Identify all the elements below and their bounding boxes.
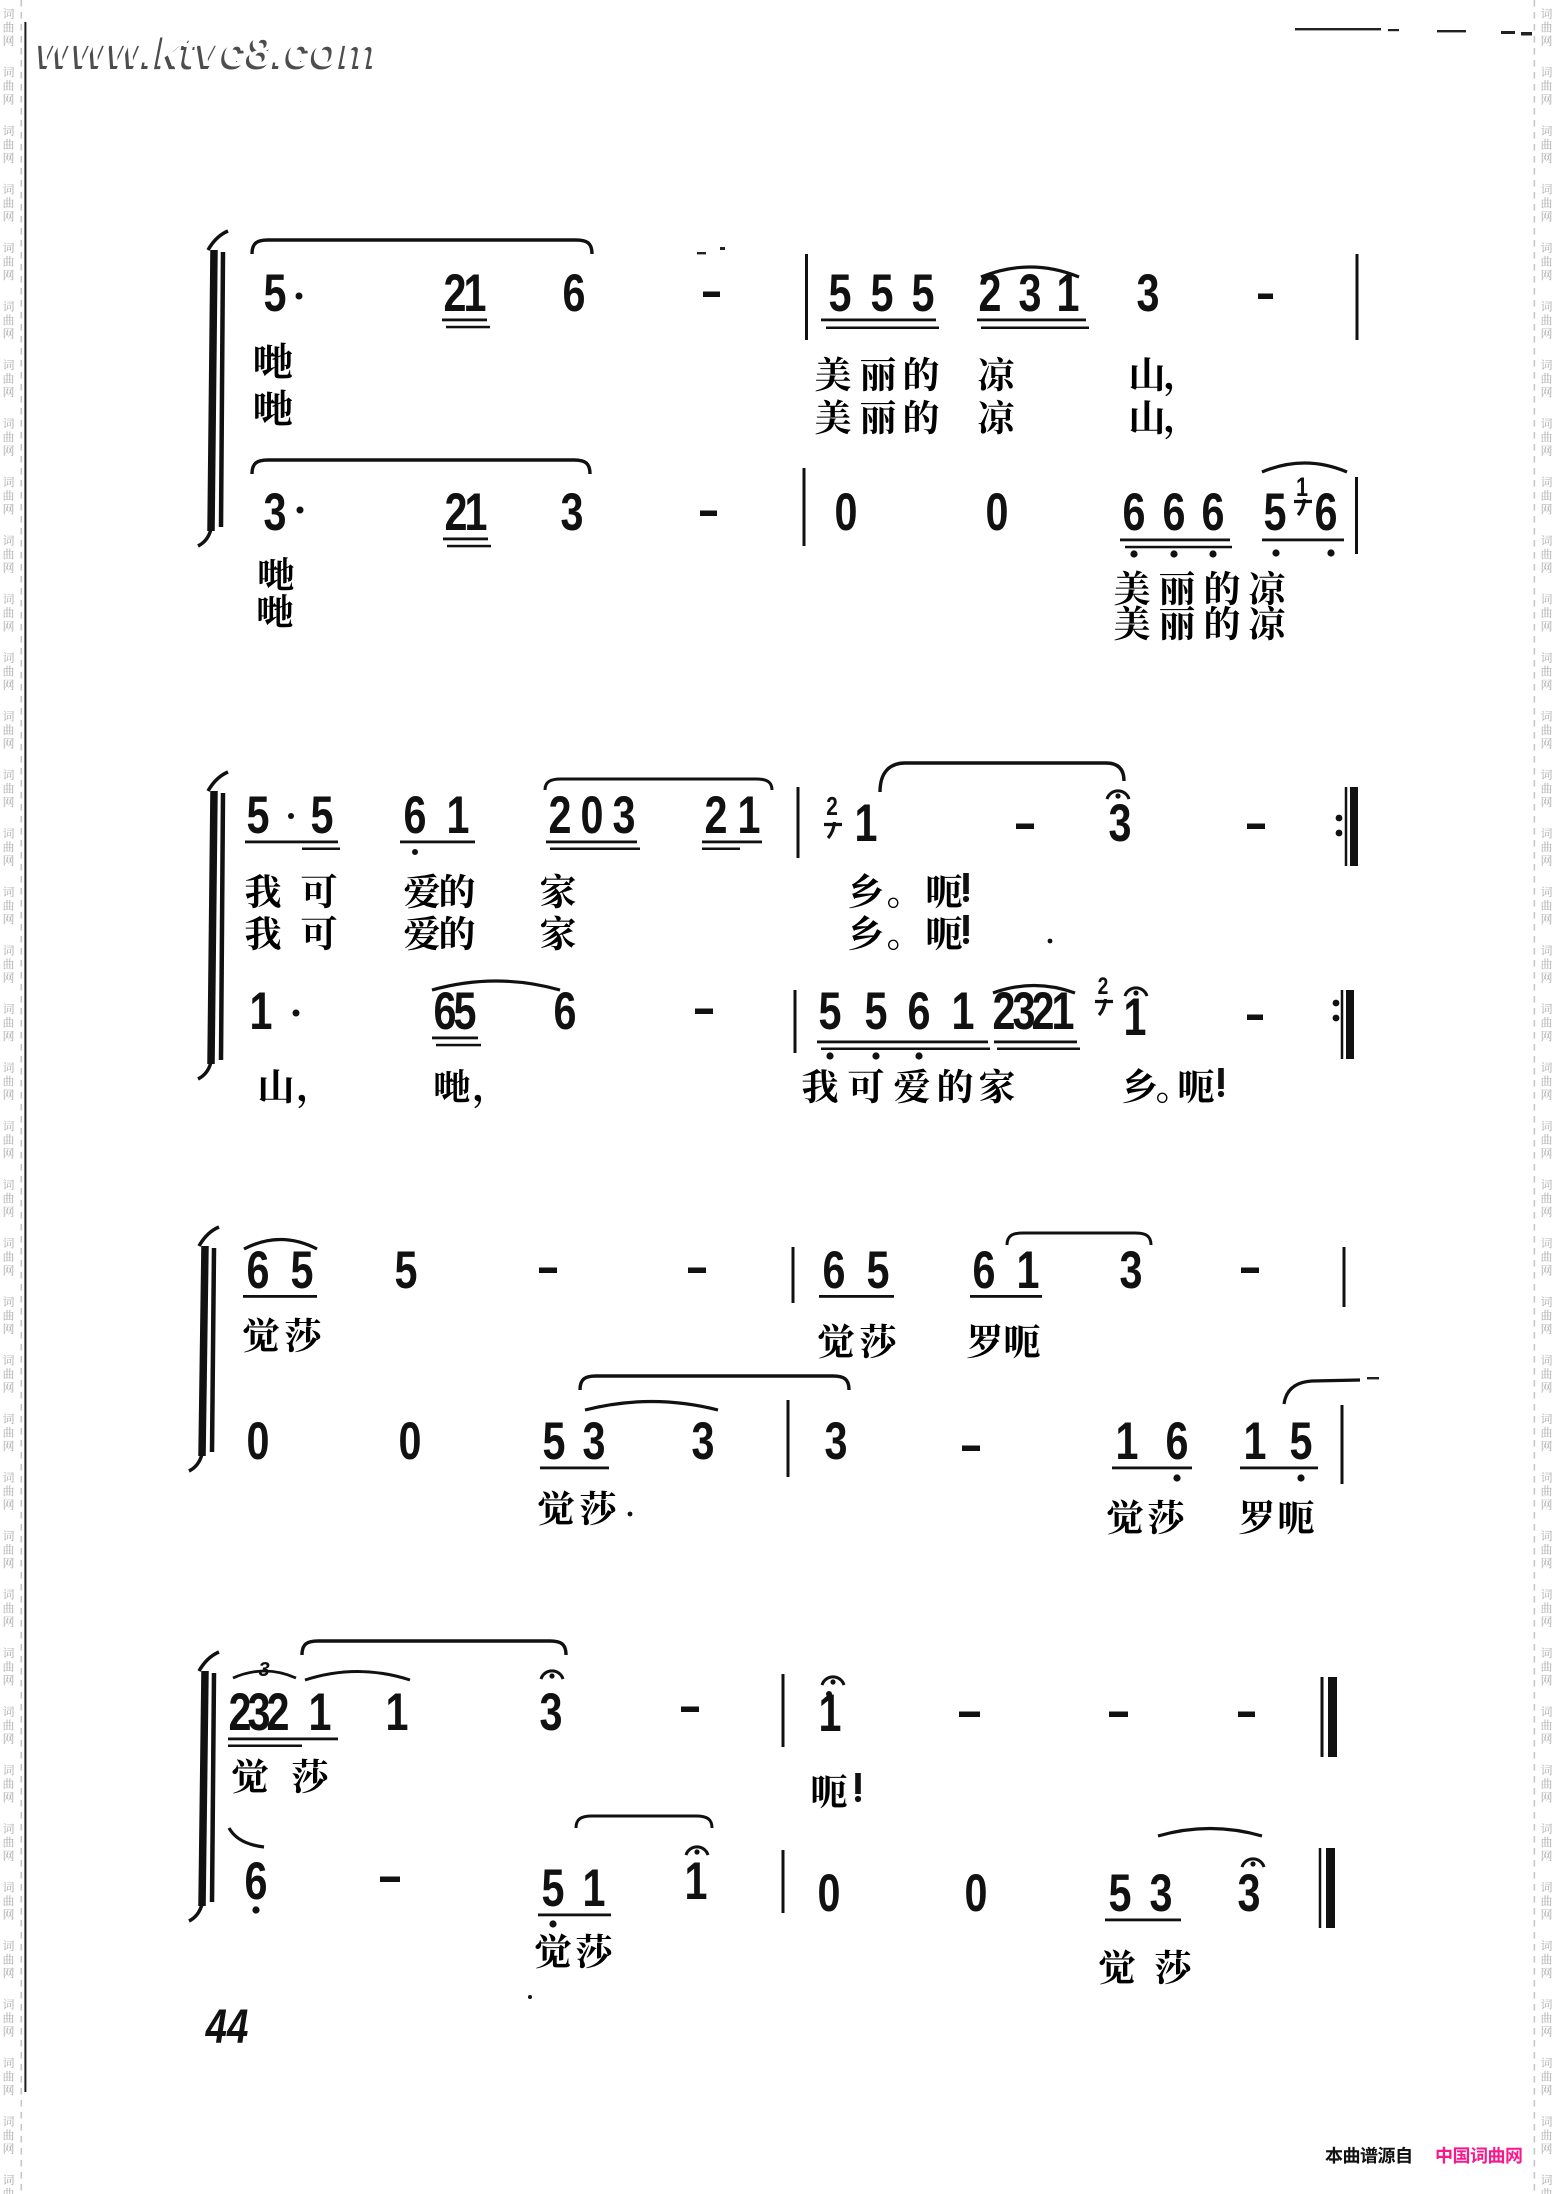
svg-text:5: 5 [454, 982, 477, 1041]
svg-text:1: 1 [1296, 473, 1308, 503]
svg-text:3: 3 [1150, 1864, 1173, 1923]
svg-text:1: 1 [819, 1684, 842, 1743]
svg-text:5: 5 [542, 1859, 565, 1918]
svg-text:1: 1 [1244, 1412, 1267, 1471]
svg-text:3: 3 [258, 1659, 269, 1681]
svg-text:2: 2 [1098, 972, 1109, 1000]
svg-text:0: 0 [818, 1864, 841, 1923]
svg-text:5: 5 [247, 786, 270, 845]
svg-text:3: 3 [561, 483, 584, 542]
svg-text:6: 6 [823, 1241, 846, 1300]
svg-text:3: 3 [692, 1412, 715, 1471]
svg-text:0: 0 [986, 483, 1009, 542]
svg-text:1: 1 [855, 794, 878, 853]
svg-text:3: 3 [583, 1412, 606, 1471]
svg-text:5: 5 [1264, 483, 1287, 542]
svg-text:1: 1 [386, 1683, 409, 1742]
svg-text:5: 5 [291, 1241, 314, 1300]
svg-text:5: 5 [264, 264, 287, 323]
svg-text:www.ktvc8.com: www.ktvc8.com [39, 27, 381, 76]
svg-text:3: 3 [825, 1412, 848, 1471]
svg-text:5: 5 [871, 264, 894, 323]
svg-text:1: 1 [1124, 988, 1147, 1047]
svg-text:5: 5 [395, 1241, 418, 1300]
svg-text:1: 1 [447, 786, 470, 845]
svg-text:1: 1 [583, 1859, 606, 1918]
svg-text:6: 6 [1315, 483, 1338, 542]
svg-text:3: 3 [1137, 264, 1160, 323]
svg-text:6: 6 [1202, 483, 1225, 542]
svg-text:3: 3 [1120, 1241, 1143, 1300]
svg-text:2: 2 [549, 786, 572, 845]
svg-text:2: 2 [267, 1683, 290, 1742]
svg-text:1: 1 [738, 786, 761, 845]
svg-text:3: 3 [1238, 1864, 1261, 1923]
svg-text:3: 3 [613, 786, 636, 845]
svg-text:1: 1 [464, 264, 487, 323]
svg-text:2: 2 [826, 792, 838, 821]
svg-text:6: 6 [908, 982, 931, 1041]
svg-text:1: 1 [250, 982, 273, 1041]
svg-text:5: 5 [912, 264, 935, 323]
svg-text:3: 3 [1109, 794, 1132, 853]
svg-text:0: 0 [581, 786, 604, 845]
svg-text:3: 3 [264, 483, 287, 542]
svg-text:1: 1 [952, 982, 975, 1041]
svg-text:2: 2 [705, 786, 728, 845]
svg-text:6: 6 [554, 982, 577, 1041]
svg-text:6: 6 [1166, 1412, 1189, 1471]
svg-text:0: 0 [965, 1864, 988, 1923]
svg-text:6: 6 [973, 1241, 996, 1300]
svg-text:3: 3 [1019, 264, 1042, 323]
svg-text:0: 0 [399, 1412, 422, 1471]
svg-text:1: 1 [1017, 1241, 1040, 1300]
svg-text:5: 5 [867, 1241, 890, 1300]
svg-text:6: 6 [247, 1241, 270, 1300]
svg-text:5: 5 [829, 264, 852, 323]
svg-text:3: 3 [540, 1683, 563, 1742]
svg-text:5: 5 [819, 982, 842, 1041]
svg-text:44: 44 [205, 2001, 249, 2054]
svg-text:1: 1 [309, 1683, 332, 1742]
svg-text:6: 6 [1123, 483, 1146, 542]
svg-text:1: 1 [685, 1852, 708, 1911]
svg-text:6: 6 [563, 264, 586, 323]
svg-text:0: 0 [835, 483, 858, 542]
svg-text:6: 6 [245, 1852, 268, 1911]
svg-text:1: 1 [1116, 1412, 1139, 1471]
svg-text:5: 5 [1109, 1864, 1132, 1923]
svg-text:6: 6 [404, 786, 427, 845]
svg-text:5: 5 [1290, 1412, 1313, 1471]
svg-text:5: 5 [865, 982, 888, 1041]
svg-text:5: 5 [311, 786, 334, 845]
svg-text:6: 6 [1163, 483, 1186, 542]
svg-text:1: 1 [465, 483, 488, 542]
svg-text:0: 0 [247, 1412, 270, 1471]
svg-text:5: 5 [543, 1412, 566, 1471]
